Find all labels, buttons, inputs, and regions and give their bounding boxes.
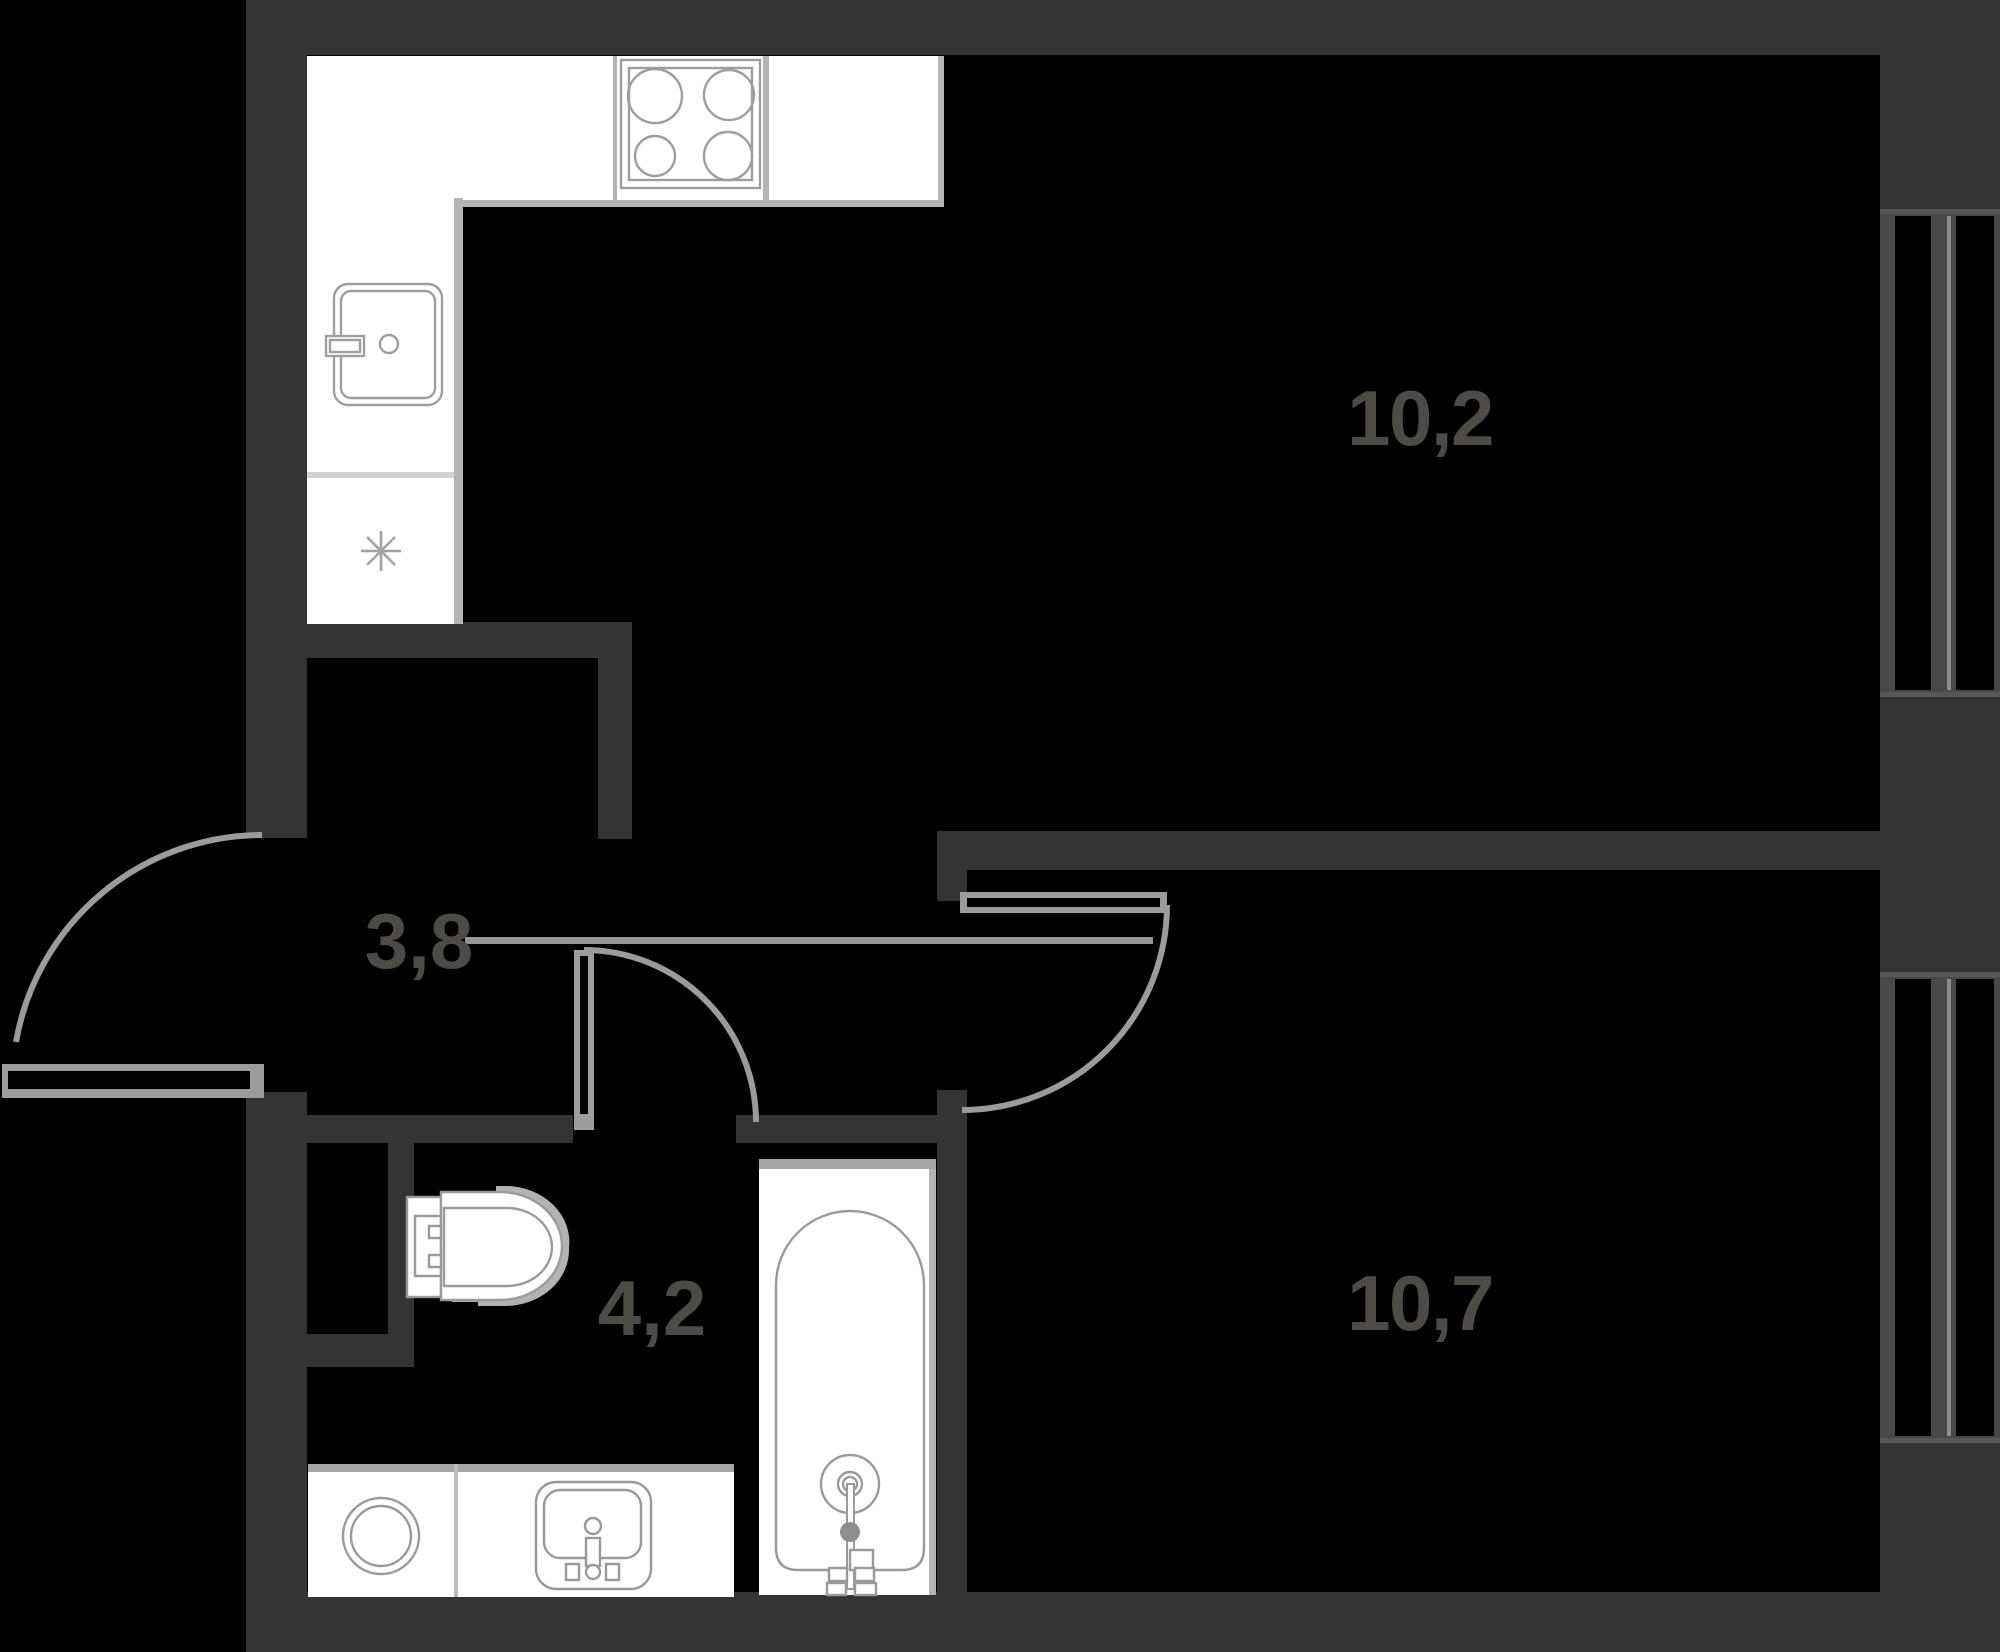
svg-text:10,2: 10,2: [1347, 374, 1493, 462]
svg-text:10,7: 10,7: [1347, 1259, 1493, 1347]
svg-text:4,2: 4,2: [598, 1264, 706, 1352]
svg-text:3,8: 3,8: [365, 897, 473, 985]
